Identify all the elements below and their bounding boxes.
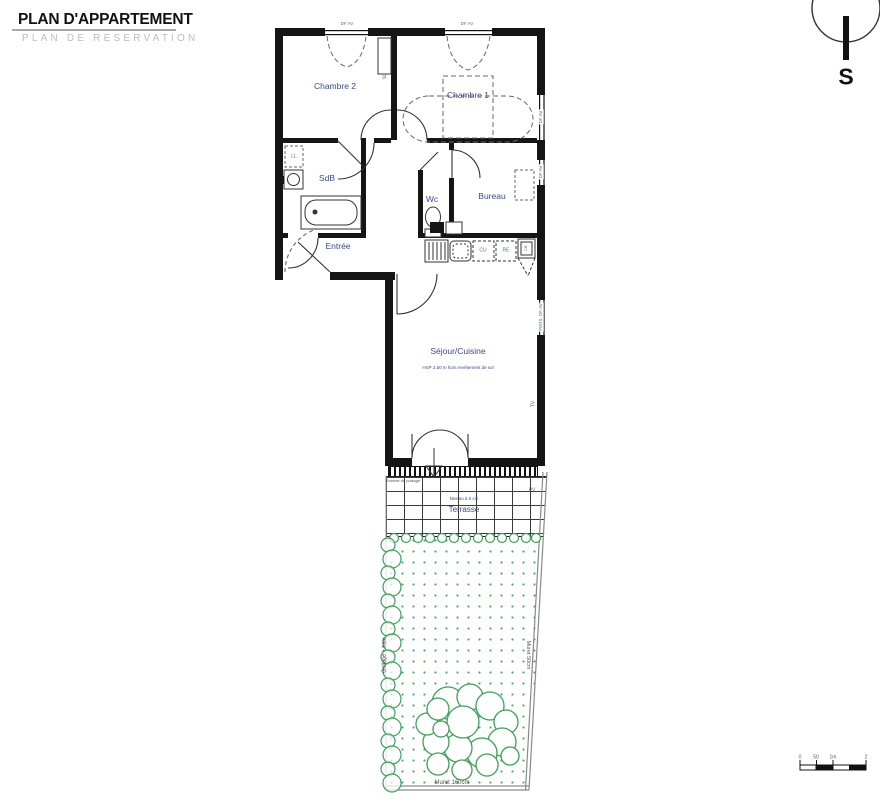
compass-icon	[812, 0, 880, 60]
window-tag-right-3: PERS. DF AV	[539, 302, 544, 331]
pv-tag: PV	[529, 489, 536, 494]
washing-machine-tag: LL	[291, 155, 297, 160]
scale-bar	[800, 760, 866, 770]
scale-tick-0: 0	[799, 756, 802, 761]
room-label-terrasse: Terrasse	[449, 506, 480, 514]
windows	[325, 30, 545, 335]
fridge-tag: RE	[503, 249, 510, 254]
room-label-chambre1: Chambre 1	[447, 91, 489, 100]
bottom-wall-label: Muret 160cm	[434, 780, 469, 786]
room-label-sdb: SdB	[319, 174, 335, 183]
room-label-sejour: Séjour/Cuisine	[430, 347, 485, 356]
sejour-ceiling-note: HSP 2.50 m hors revêtement de sol	[422, 366, 493, 371]
dishwasher-tag: LV	[524, 245, 529, 250]
window-tag-right-2: DF AV	[539, 165, 544, 180]
terrace-level-note: Niveau à 5 cm	[450, 497, 479, 502]
drain-symbol	[426, 448, 442, 477]
fence-label: Grillage + haie	[382, 637, 388, 673]
window-tag-right-1: DF AV	[539, 110, 544, 125]
right-wall-label: Muret 50cm	[524, 640, 530, 669]
room-label-bureau: Bureau	[478, 192, 505, 201]
floorplan-linework	[0, 0, 880, 800]
scale-tick-2: 2	[865, 756, 868, 761]
hedge-row	[390, 534, 541, 543]
room-label-entree: Entrée	[325, 242, 350, 251]
tv-outlet-tag: TV	[532, 401, 537, 407]
window-tag-top-right: DF AV	[461, 22, 474, 27]
bush-cluster	[416, 684, 519, 780]
compass-south-label: S	[838, 64, 853, 91]
room-label-wc: Wc	[426, 195, 438, 204]
scale-tick-1m: 1m	[830, 756, 837, 761]
closet-tag: pl.	[382, 76, 387, 81]
window-tag-top-left: DF AV	[341, 22, 354, 27]
floorplan-page: PLAN D'APPARTEMENT PLAN DE RESERVATION	[0, 0, 880, 800]
tap-note: Robinet de puisage	[386, 479, 420, 483]
scale-tick-50: 50	[813, 756, 819, 761]
room-label-chambre2: Chambre 2	[314, 82, 356, 91]
doors	[285, 110, 480, 458]
cooktop-tag: CU	[479, 249, 486, 254]
closet	[378, 38, 391, 74]
